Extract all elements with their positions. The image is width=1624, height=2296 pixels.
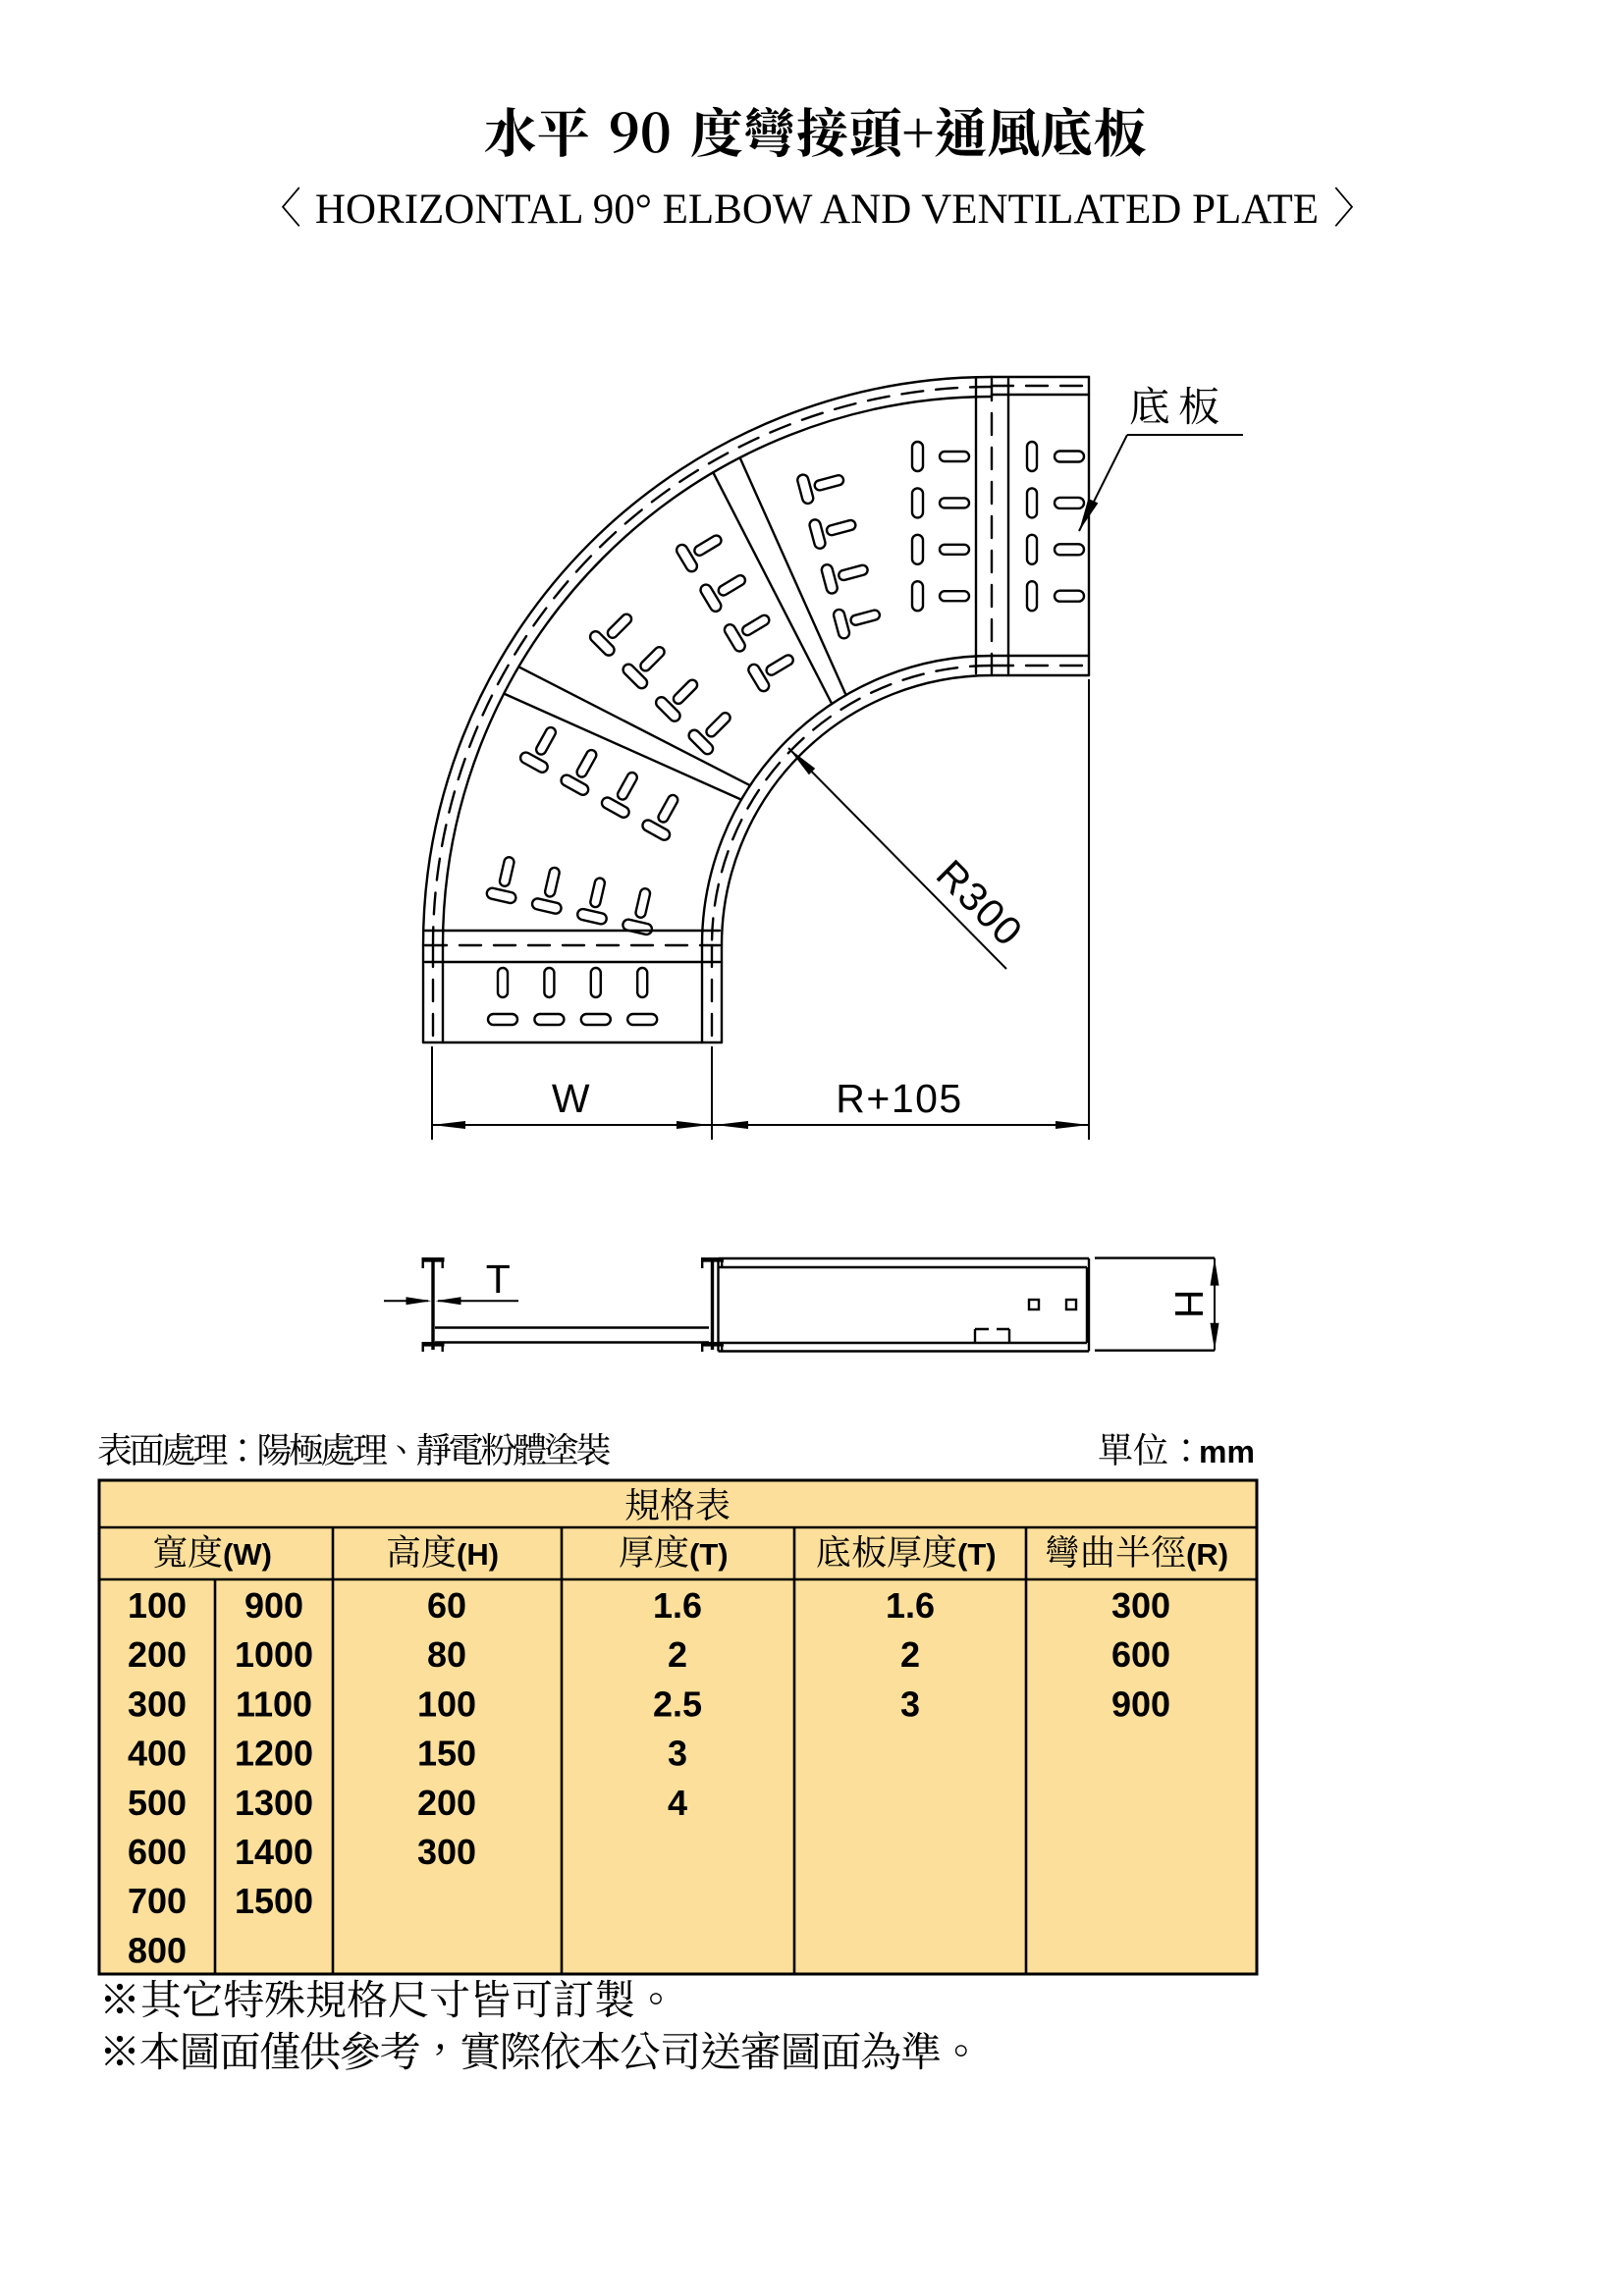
svg-text:300: 300 [128, 1683, 187, 1724]
svg-text:W: W [552, 1076, 591, 1121]
svg-text:HORIZONTAL 90° ELBOW AND VENT: HORIZONTAL 90° ELBOW AND VENTILATED PLAT… [315, 187, 1319, 233]
svg-text:700: 700 [128, 1881, 187, 1921]
svg-text:60: 60 [427, 1585, 466, 1626]
svg-text:T: T [486, 1256, 513, 1302]
svg-text:2.5: 2.5 [653, 1683, 702, 1724]
svg-text:100: 100 [128, 1585, 187, 1626]
svg-text:R300: R300 [928, 851, 1032, 955]
svg-text:(R): (R) [1186, 1537, 1228, 1572]
svg-text:1300: 1300 [235, 1783, 313, 1823]
svg-text:1100: 1100 [236, 1683, 312, 1724]
svg-text:(T): (T) [689, 1537, 729, 1572]
svg-text:400: 400 [128, 1734, 187, 1774]
svg-text:mm: mm [1199, 1434, 1255, 1469]
svg-text:200: 200 [128, 1634, 187, 1675]
svg-text:R+105: R+105 [836, 1076, 962, 1121]
svg-text:900: 900 [1111, 1683, 1170, 1724]
svg-text:1400: 1400 [235, 1832, 313, 1872]
svg-text:1500: 1500 [235, 1881, 313, 1921]
svg-text:600: 600 [1111, 1634, 1170, 1675]
svg-text:300: 300 [417, 1832, 476, 1872]
svg-text:3: 3 [900, 1683, 920, 1724]
svg-text:80: 80 [427, 1634, 466, 1675]
svg-text:900: 900 [244, 1585, 303, 1626]
svg-text:(T): (T) [957, 1537, 997, 1572]
svg-text:2: 2 [668, 1634, 687, 1675]
svg-text:1.6: 1.6 [886, 1585, 935, 1626]
svg-text:3: 3 [668, 1734, 687, 1774]
svg-text:800: 800 [128, 1930, 187, 1970]
svg-text:500: 500 [128, 1783, 187, 1823]
svg-text:(W): (W) [223, 1537, 272, 1572]
svg-text:1.6: 1.6 [653, 1585, 702, 1626]
svg-text:(H): (H) [457, 1537, 499, 1572]
svg-text:600: 600 [128, 1832, 187, 1872]
svg-text:2: 2 [900, 1634, 920, 1675]
svg-text:4: 4 [668, 1783, 687, 1823]
svg-text:300: 300 [1111, 1585, 1170, 1626]
svg-text:H: H [1166, 1289, 1212, 1319]
svg-text:150: 150 [417, 1734, 476, 1774]
svg-text:1000: 1000 [235, 1634, 313, 1675]
svg-text:200: 200 [417, 1783, 476, 1823]
svg-text:1200: 1200 [235, 1734, 313, 1774]
svg-text:100: 100 [417, 1683, 476, 1724]
